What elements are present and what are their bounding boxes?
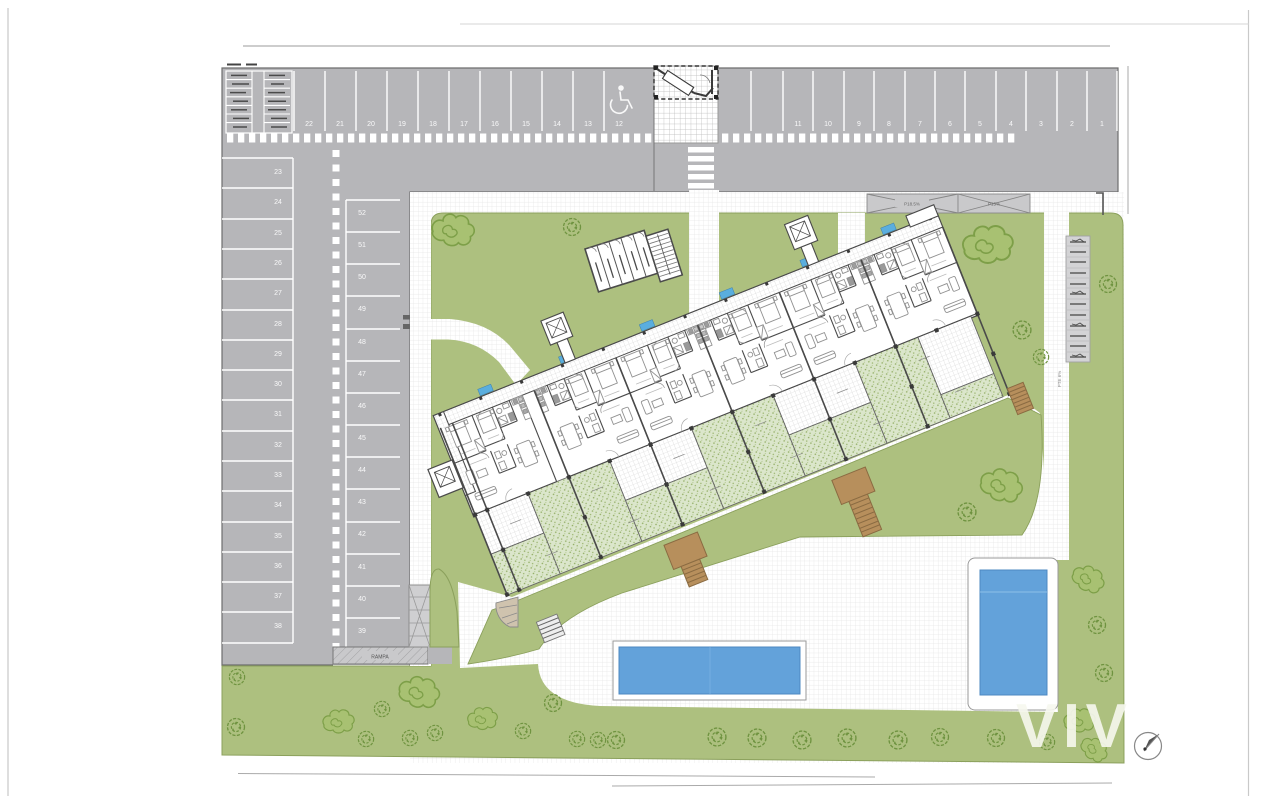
svg-text:8: 8: [887, 121, 891, 128]
svg-text:P18.5%: P18.5%: [904, 202, 920, 207]
svg-text:RAMPA: RAMPA: [371, 655, 389, 661]
svg-text:40: 40: [358, 596, 366, 603]
svg-text:1: 1: [1100, 121, 1104, 128]
svg-text:52: 52: [358, 210, 366, 217]
svg-text:7: 7: [918, 121, 922, 128]
svg-text:29: 29: [274, 351, 282, 358]
svg-text:21: 21: [336, 121, 344, 128]
svg-text:25: 25: [274, 230, 282, 237]
svg-text:39: 39: [358, 628, 366, 635]
svg-text:38: 38: [274, 623, 282, 630]
svg-text:46: 46: [358, 403, 366, 410]
svg-text:49: 49: [358, 306, 366, 313]
svg-text:11: 11: [794, 121, 801, 128]
svg-text:12: 12: [615, 121, 623, 128]
svg-text:48: 48: [358, 339, 366, 346]
svg-text:15: 15: [522, 121, 530, 128]
svg-text:31: 31: [274, 411, 282, 418]
svg-text:47: 47: [358, 371, 366, 378]
svg-text:24: 24: [274, 199, 282, 206]
svg-text:VIV: VIV: [1016, 692, 1132, 761]
svg-text:35: 35: [274, 533, 282, 540]
svg-text:13: 13: [584, 121, 592, 128]
svg-text:27: 27: [274, 290, 282, 297]
svg-text:26: 26: [274, 260, 282, 267]
svg-text:P15%: P15%: [988, 202, 1000, 207]
svg-text:34: 34: [274, 502, 282, 509]
svg-text:3: 3: [1039, 121, 1043, 128]
svg-text:6: 6: [948, 121, 952, 128]
svg-text:43: 43: [358, 499, 366, 506]
svg-text:50: 50: [358, 274, 366, 281]
svg-text:41: 41: [358, 564, 366, 571]
svg-text:14: 14: [553, 121, 561, 128]
svg-text:5: 5: [978, 121, 982, 128]
svg-text:28: 28: [274, 321, 282, 328]
svg-text:30: 30: [274, 381, 282, 388]
svg-text:22: 22: [305, 121, 313, 128]
svg-text:20: 20: [367, 121, 375, 128]
svg-text:23: 23: [274, 169, 282, 176]
svg-text:33: 33: [274, 472, 282, 479]
svg-text:51: 51: [358, 242, 366, 249]
svg-text:9: 9: [857, 121, 861, 128]
svg-text:36: 36: [274, 563, 282, 570]
svg-text:4: 4: [1009, 121, 1013, 128]
svg-text:19: 19: [398, 121, 406, 128]
svg-text:10: 10: [824, 121, 832, 128]
svg-text:44: 44: [358, 467, 366, 474]
svg-text:2: 2: [1070, 121, 1074, 128]
svg-text:17: 17: [460, 121, 468, 128]
svg-text:16: 16: [491, 121, 499, 128]
svg-text:18: 18: [429, 121, 437, 128]
svg-text:PTE 6%: PTE 6%: [1057, 371, 1062, 388]
svg-text:37: 37: [274, 593, 282, 600]
svg-text:45: 45: [358, 435, 366, 442]
svg-text:42: 42: [358, 531, 366, 538]
svg-text:32: 32: [274, 442, 282, 449]
